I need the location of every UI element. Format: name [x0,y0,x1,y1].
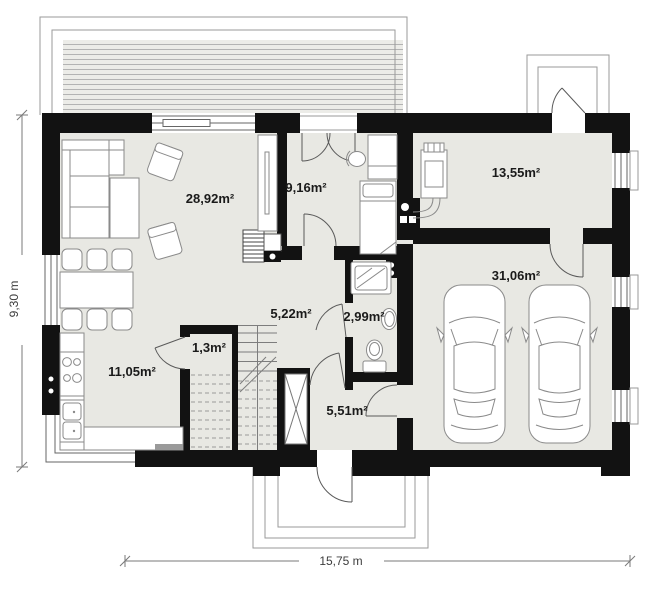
dining-set [60,249,133,330]
width-dimension-label: 15,75 m [319,554,362,568]
room-label-garage: 31,06m² [492,268,541,283]
flue-block [397,198,420,228]
height-dimension-label: 9,30 m [7,281,21,318]
room-label-living: 28,92m² [186,191,235,206]
floor-plan-drawing: 15,75 m 9,30 m 28,92m² 9,16m² 13,55m² 5,… [0,0,660,589]
room-label-pantry: 1,3m² [192,340,227,355]
kitchen-appliance-front [155,444,183,450]
kitchen-sink [60,400,84,442]
tv-unit [258,135,277,231]
wardrobe [368,135,397,179]
room-label-bathroom: 2,99m² [343,309,385,324]
entry-porch-top [527,55,609,113]
garage-window-1 [612,275,638,309]
dining-table [60,272,133,308]
floor-plan-page: 15,75 m 9,30 m 28,92m² 9,16m² 13,55m² 5,… [0,0,660,589]
dimension-width: 15,75 m [120,554,635,568]
cooktop [60,352,84,396]
coffee-table [110,178,139,238]
bed [360,181,396,254]
room-label-hall: 5,22m² [270,306,312,321]
entry-porch-bottom [253,467,428,548]
room-label-kitchen: 11,05m² [108,364,156,379]
room-label-room: 9,16m² [285,180,327,195]
shower [351,262,391,294]
fireplace [243,230,281,262]
sliding-door [152,113,255,133]
front-door [317,450,352,502]
wall-vent-dot [49,377,54,382]
terrace-deck [63,40,403,115]
room-label-vestibule: 5,51m² [326,403,368,418]
car-2 [522,285,597,443]
terrace [40,17,407,115]
utility-window [612,151,638,190]
garage-window-2 [612,388,638,424]
chimney-shaft [277,368,310,450]
room-label-utility: 13,55m² [492,165,541,180]
wall-vent-dot [49,389,54,394]
dimension-height: 9,30 m [7,110,28,472]
car-1 [437,285,512,443]
utility-entrance-door [552,88,585,133]
dining-window [42,255,60,325]
